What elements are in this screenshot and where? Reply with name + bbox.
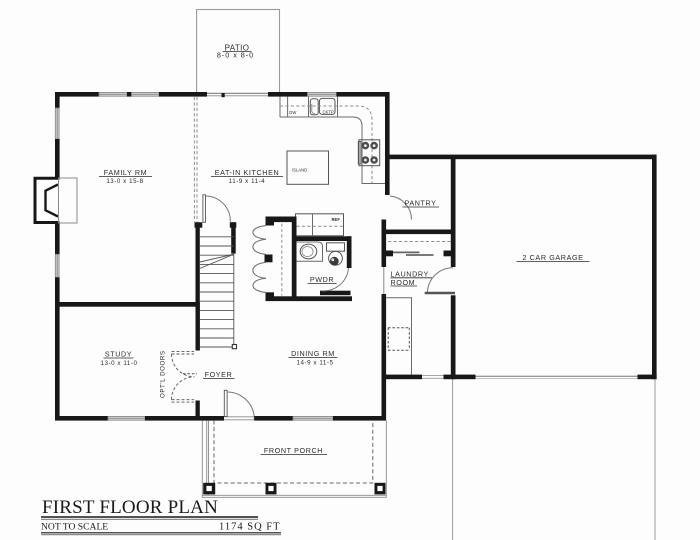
svg-text:PWDR: PWDR (310, 275, 334, 284)
svg-text:OPT'L DOORS: OPT'L DOORS (160, 350, 167, 398)
svg-text:PANTRY: PANTRY (404, 199, 436, 208)
svg-text:14-9 x 11-5: 14-9 x 11-5 (297, 360, 334, 367)
svg-text:FIRST FLOOR PLAN: FIRST FLOOR PLAN (42, 497, 218, 518)
svg-text:REF: REF (332, 217, 341, 222)
svg-text:DINING RM: DINING RM (291, 349, 335, 358)
svg-text:1174 SQ FT: 1174 SQ FT (219, 522, 281, 533)
svg-text:EAT-IN KITCHEN: EAT-IN KITCHEN (215, 168, 280, 177)
svg-text:DW: DW (289, 110, 296, 115)
svg-text:13-0 x 11-0: 13-0 x 11-0 (101, 360, 138, 367)
svg-text:NOT TO SCALE: NOT TO SCALE (41, 522, 108, 533)
svg-text:FAMILY RM: FAMILY RM (104, 168, 147, 177)
svg-text:11-9 x 11-4: 11-9 x 11-4 (229, 178, 265, 185)
svg-text:ROOM: ROOM (391, 278, 416, 287)
svg-text:STUDY: STUDY (105, 350, 132, 359)
svg-text:8-0 x 8-0: 8-0 x 8-0 (217, 51, 254, 60)
svg-text:FRONT PORCH: FRONT PORCH (264, 446, 323, 455)
svg-text:ISLAND: ISLAND (292, 168, 307, 173)
svg-text:2 CAR GARAGE: 2 CAR GARAGE (522, 253, 583, 262)
svg-text:FOYER: FOYER (205, 370, 233, 379)
svg-text:13-0 x 15-8: 13-0 x 15-8 (106, 178, 143, 185)
svg-text:CKTP: CKTP (323, 110, 334, 115)
